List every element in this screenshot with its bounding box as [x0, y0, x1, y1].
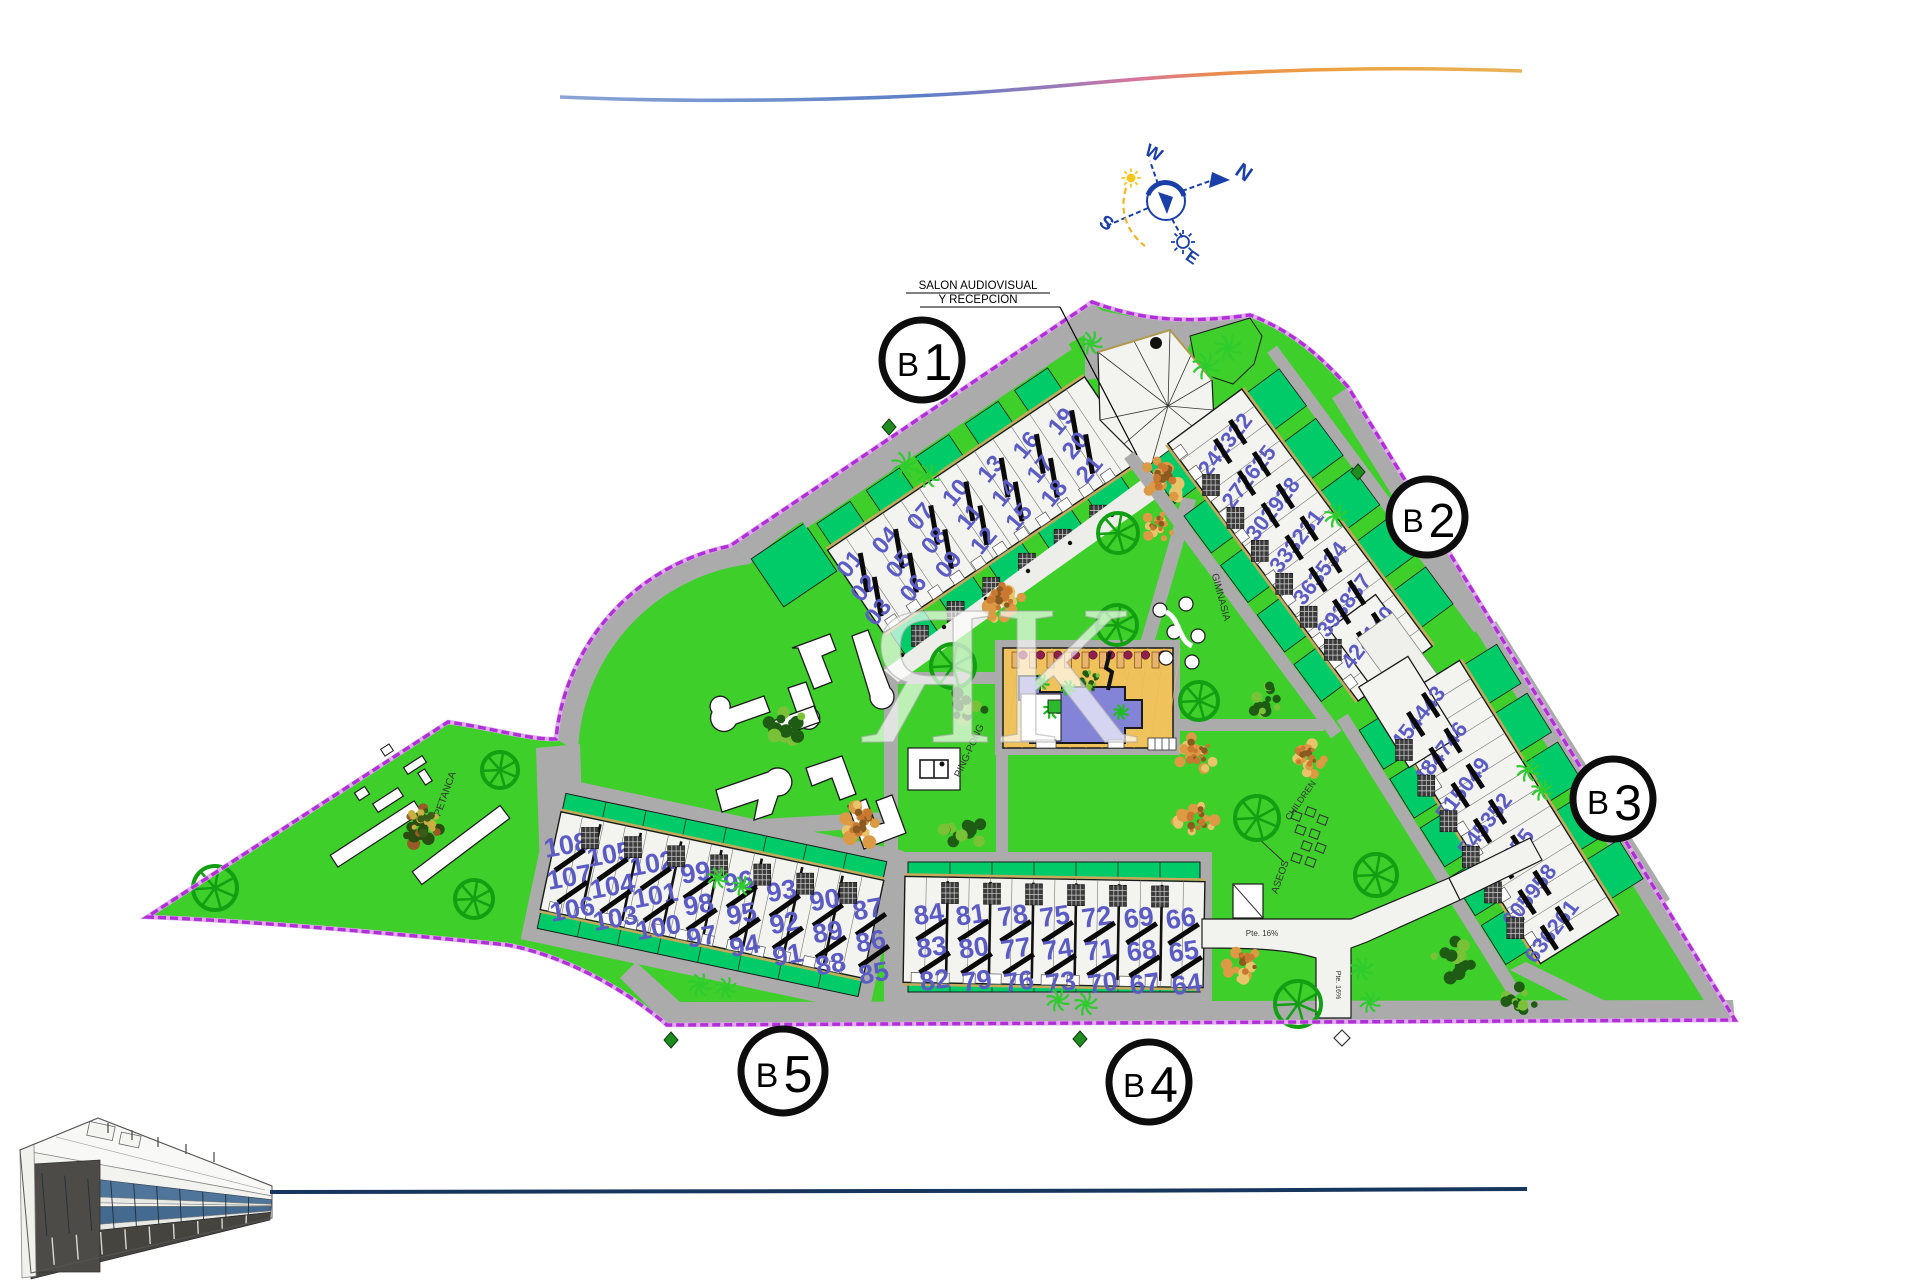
svg-text:B: B [756, 1057, 779, 1095]
svg-text:B: B [1587, 784, 1609, 821]
svg-text:89: 89 [810, 915, 845, 950]
svg-text:98: 98 [681, 887, 716, 922]
svg-text:92: 92 [767, 905, 802, 940]
svg-text:Y RECEPCIÓN: Y RECEPCIÓN [938, 293, 1017, 306]
svg-text:97: 97 [684, 919, 719, 954]
svg-text:76: 76 [1002, 965, 1036, 999]
svg-text:94: 94 [727, 928, 762, 963]
svg-text:5: 5 [784, 1046, 813, 1104]
svg-text:85: 85 [856, 956, 891, 991]
svg-text:SALON AUDIOVISUAL: SALON AUDIOVISUAL [919, 280, 1038, 292]
svg-text:Pte. 16%: Pte. 16% [1246, 929, 1278, 938]
svg-text:B: B [1123, 1067, 1145, 1104]
svg-text:4: 4 [1150, 1057, 1178, 1113]
svg-text:79: 79 [960, 964, 994, 998]
svg-text:Pte. 16%: Pte. 16% [1334, 971, 1341, 999]
svg-text:1: 1 [924, 334, 953, 392]
svg-text:88: 88 [813, 947, 848, 982]
svg-text:B: B [1402, 503, 1423, 539]
svg-text:64: 64 [1170, 967, 1204, 1001]
svg-text:3: 3 [1614, 775, 1642, 831]
svg-text:91: 91 [770, 937, 805, 972]
svg-text:ЯK: ЯK [861, 565, 1139, 786]
svg-text:86: 86 [853, 924, 888, 959]
svg-text:B: B [897, 346, 919, 383]
svg-text:67: 67 [1128, 967, 1162, 1001]
svg-text:95: 95 [724, 896, 759, 931]
svg-text:82: 82 [918, 963, 952, 997]
svg-text:2: 2 [1429, 495, 1456, 548]
